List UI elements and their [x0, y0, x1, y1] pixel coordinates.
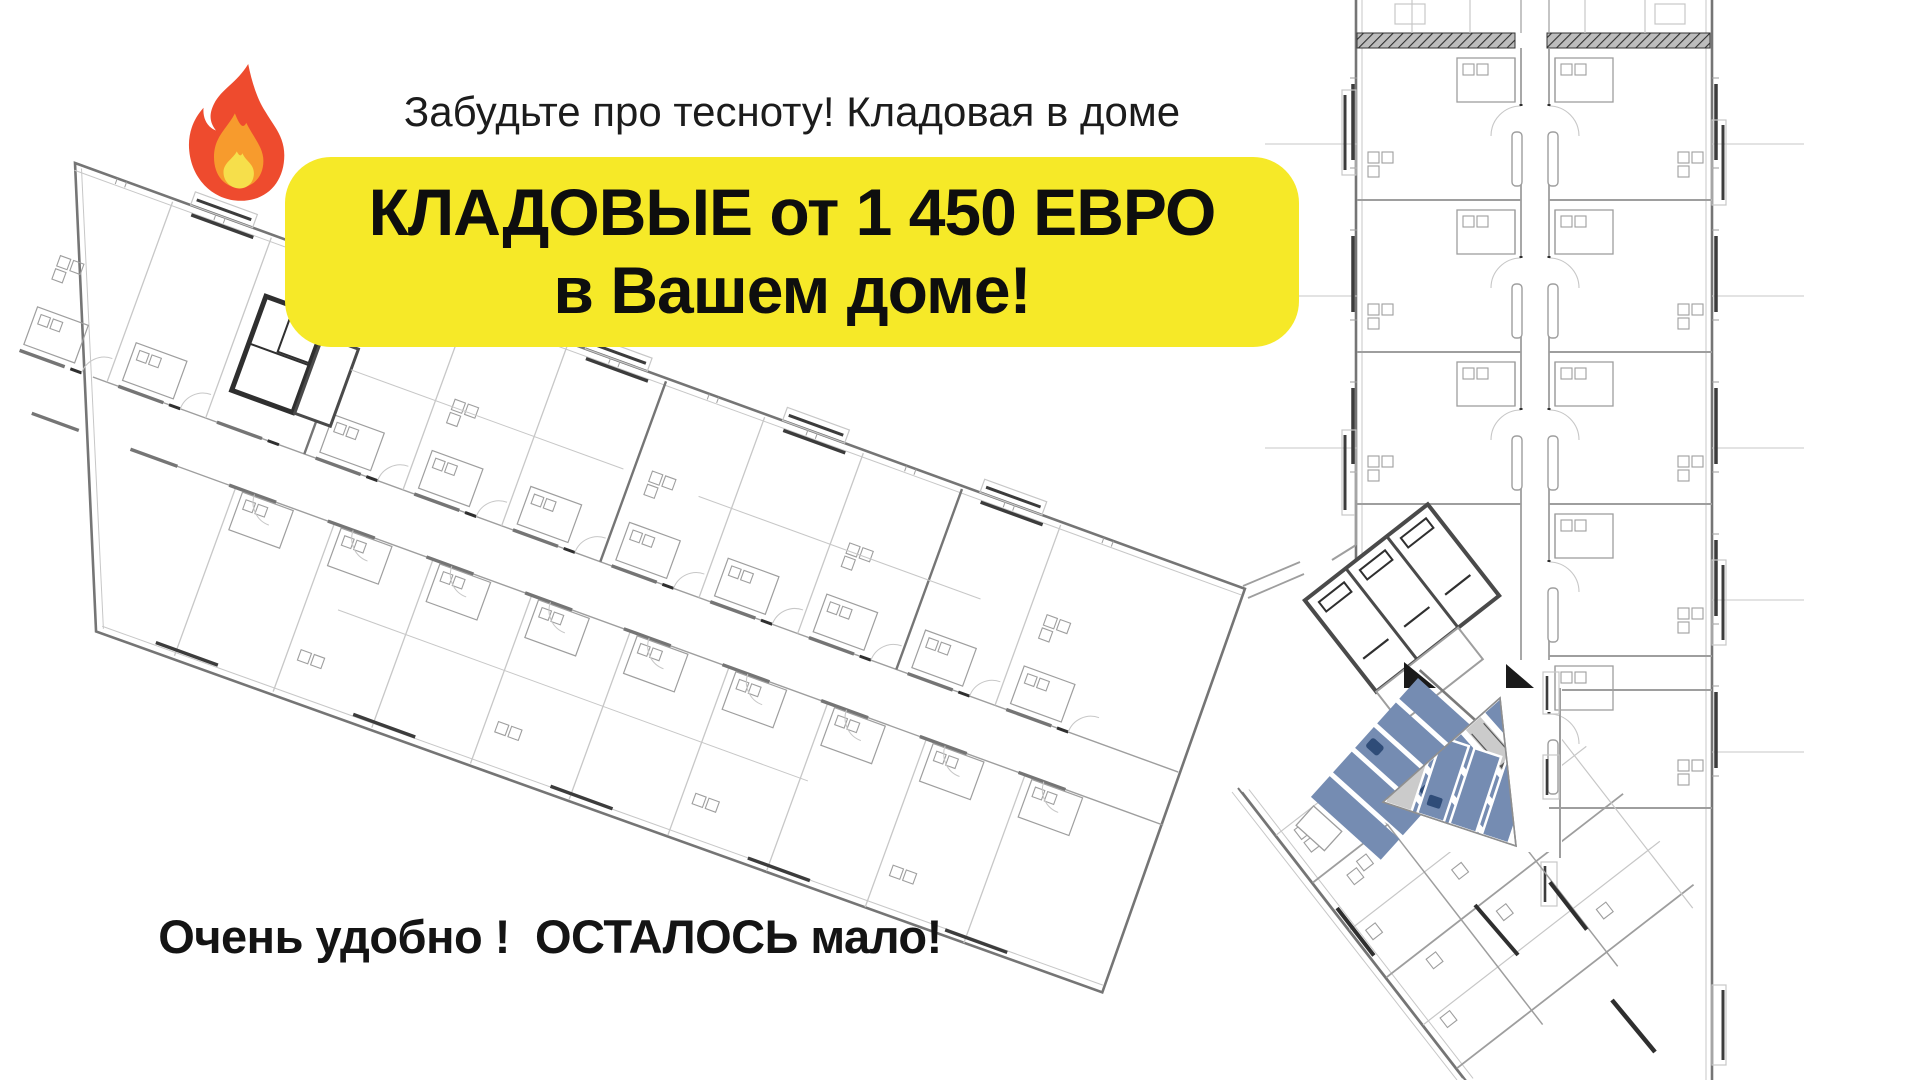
- closing-line1: Очень удобно ! ОСТАЛОСЬ мало!: [110, 908, 990, 967]
- headline-line1: КЛАДОВЫЕ от 1 450 ЕВРО: [369, 174, 1216, 252]
- promo-banner: КЛАДОВЫЕ от 1 450 ЕВРО в Вашем доме!: [285, 157, 1299, 347]
- promo-caption: Забудьте про тесноту! Кладовая в доме: [286, 88, 1298, 136]
- fire-icon: [176, 62, 290, 218]
- headline-line2: в Вашем доме!: [553, 252, 1030, 330]
- promo-flyer: Забудьте про тесноту! Кладовая в доме КЛ…: [0, 0, 1920, 1080]
- closing-text: Очень удобно ! ОСТАЛОСЬ мало! Успейте ку…: [110, 790, 990, 1080]
